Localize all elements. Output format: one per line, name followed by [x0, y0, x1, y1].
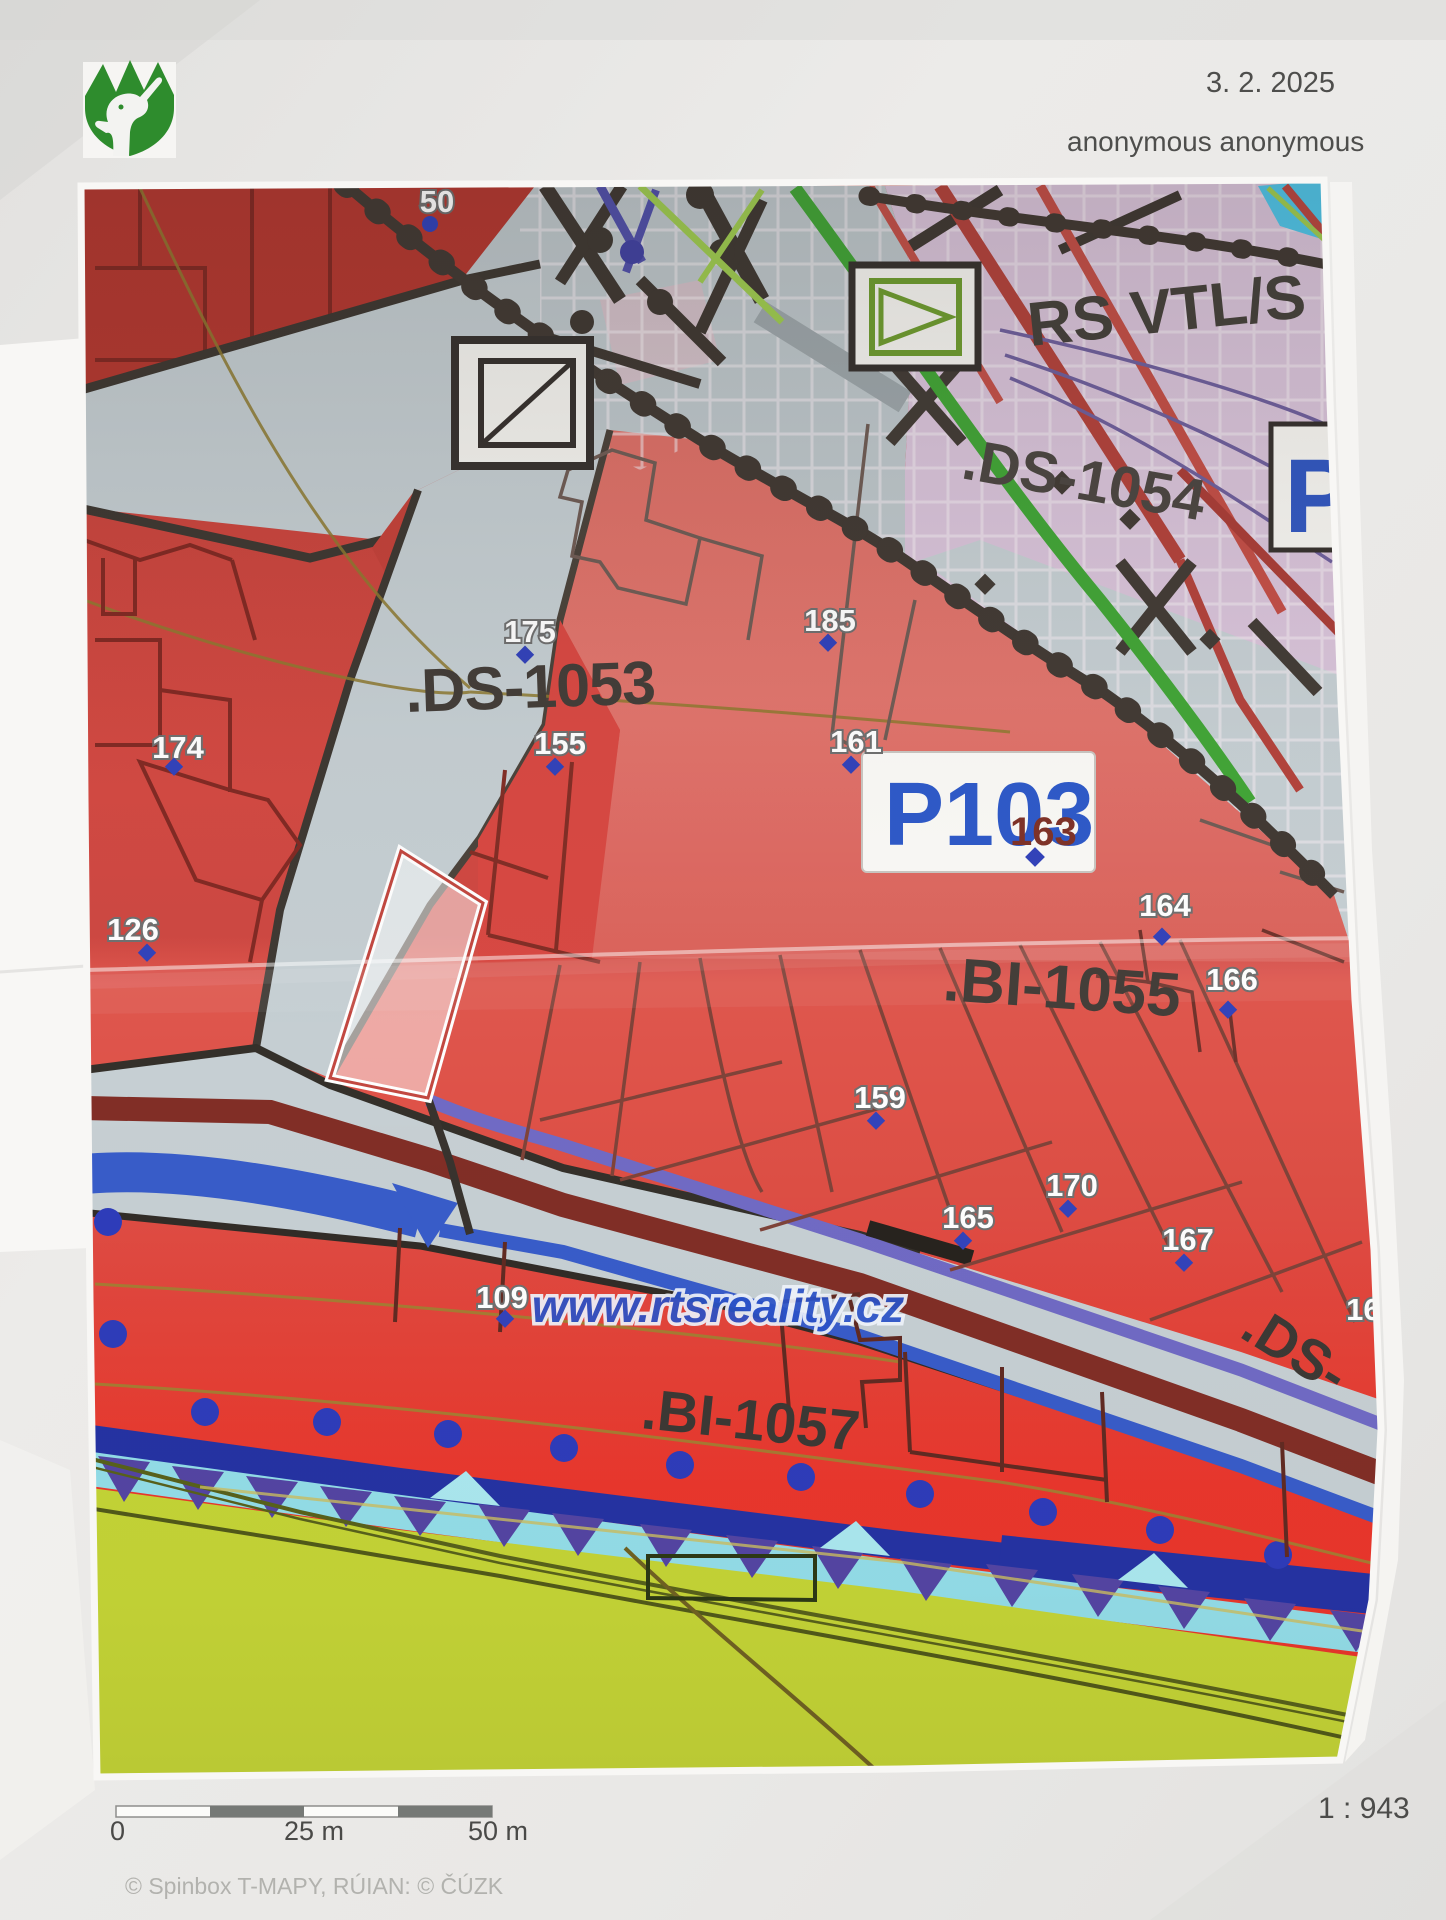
svg-text:www.rtsreality.cz: www.rtsreality.cz: [532, 1280, 904, 1332]
svg-text:25 m: 25 m: [284, 1816, 344, 1846]
svg-text:1 : 943: 1 : 943: [1318, 1792, 1410, 1825]
svg-text:© Spinbox T-MAPY, RÚIAN: © ČÚZ: © Spinbox T-MAPY, RÚIAN: © ČÚZK: [125, 1872, 504, 1899]
svg-text:50 m: 50 m: [468, 1816, 528, 1846]
svg-text:0: 0: [110, 1816, 125, 1846]
svg-text:3. 2. 2025: 3. 2. 2025: [1206, 67, 1335, 99]
svg-text:anonymous anonymous: anonymous anonymous: [1067, 126, 1364, 157]
